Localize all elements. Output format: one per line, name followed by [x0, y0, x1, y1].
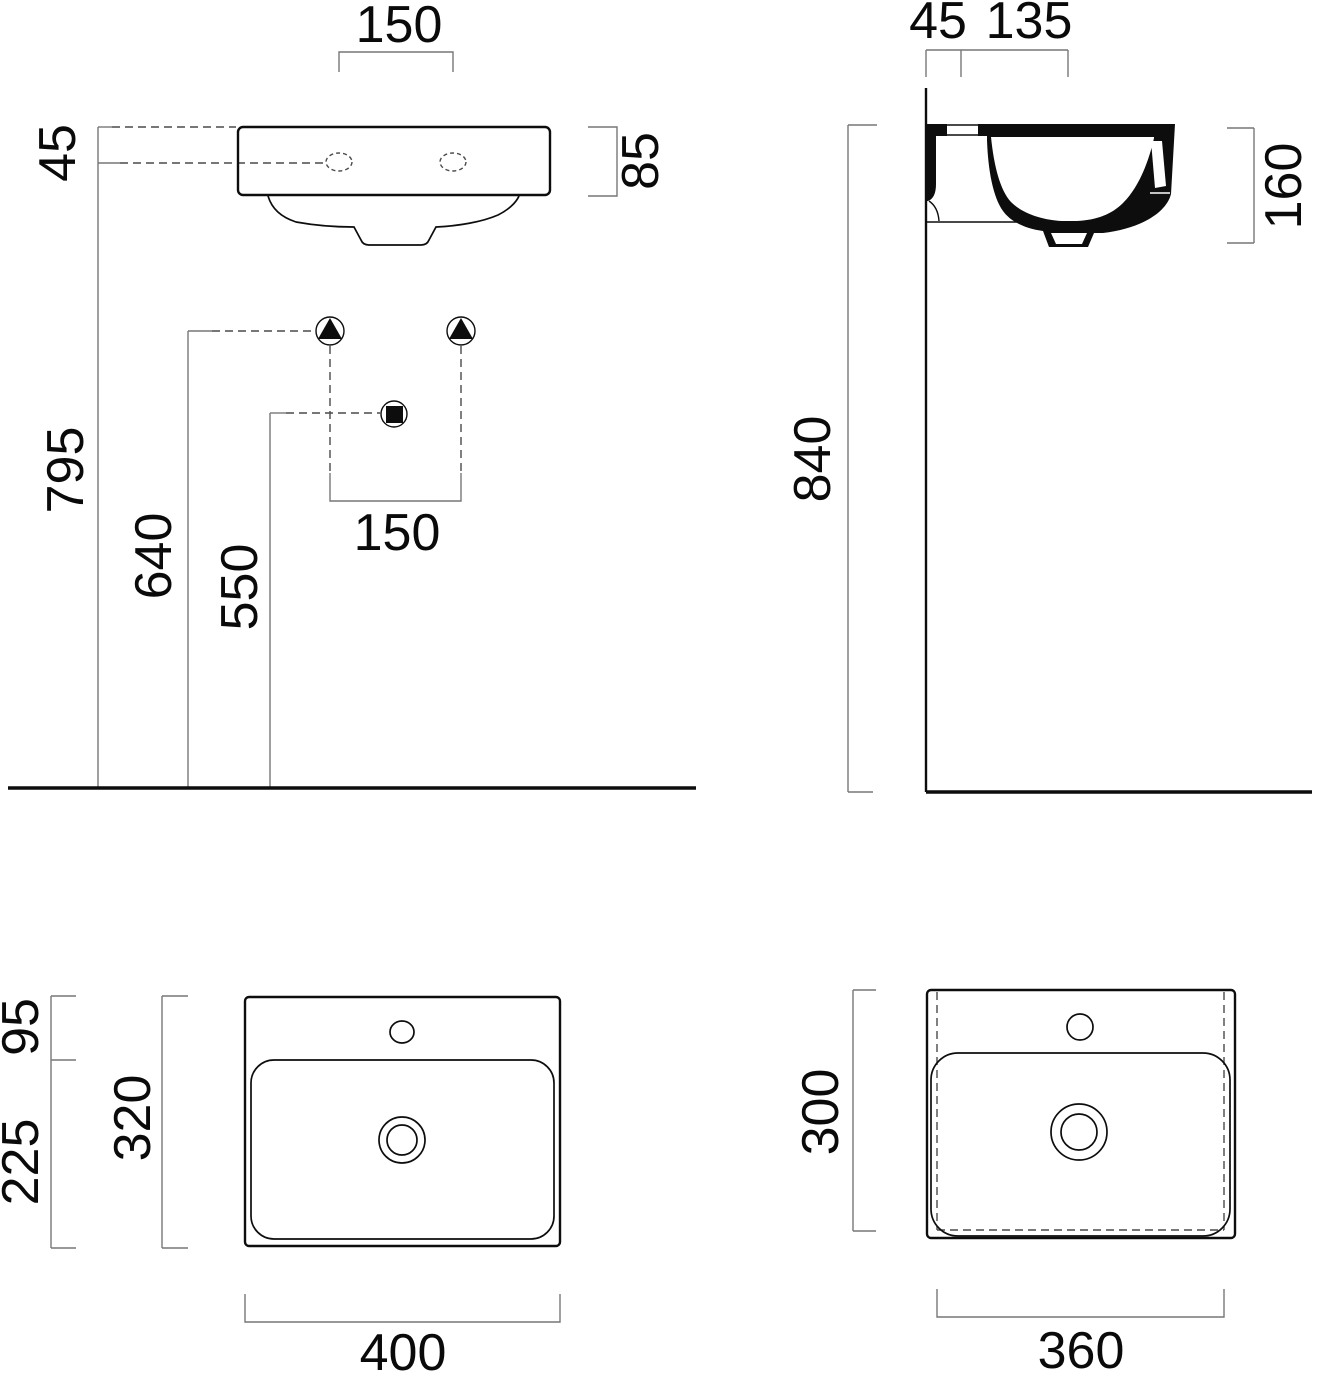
water-supply-symbol-left: [316, 317, 344, 345]
underside-hidden-ledge: [937, 992, 1224, 1230]
dim-label-floor-to-supply: 640: [125, 513, 183, 600]
plan-outer-outline: [245, 997, 560, 1246]
dim-label-floor-to-rim: 840: [784, 416, 842, 503]
dim-label-floor-to-tap: 795: [37, 427, 95, 514]
washbasin-dimension-drawing: 150 45 795 85 640: [0, 0, 1320, 1375]
section-back-flange: [926, 124, 947, 201]
dim-bracket-total-depth: [162, 996, 188, 1248]
section-drain-opening: [1051, 233, 1087, 244]
section-body: [978, 124, 1175, 247]
dim-bracket-basin-depth: [1227, 128, 1254, 243]
dim-bracket-tap-spacing-top: [339, 52, 453, 72]
dim-label-underside-depth: 300: [792, 1069, 850, 1156]
dim-bracket-deck-bowl: [51, 996, 76, 1248]
dim-label-underside-width: 360: [1038, 1322, 1125, 1375]
underside-drain-inner: [1061, 1114, 1097, 1150]
waste-outlet-square-icon: [386, 406, 403, 423]
dim-bracket-total-width: [245, 1294, 560, 1322]
water-supply-triangle-icon: [318, 318, 342, 339]
dim-label-floor-to-drain: 550: [211, 544, 269, 631]
dim-label-supply-spacing: 150: [354, 504, 441, 562]
dim-label-bowl-depth: 225: [0, 1119, 50, 1206]
section-back-lower-curve: [929, 201, 939, 221]
dim-label-rim-height: 85: [612, 132, 670, 190]
dim-label-deck-depth: 95: [0, 998, 50, 1056]
plan-drain-inner: [387, 1125, 417, 1155]
technical-drawing-page: 150 45 795 85 640: [0, 0, 1320, 1375]
sink-body-outline: [238, 127, 550, 195]
plan-view-top: 95 225 320 400: [0, 996, 560, 1375]
water-supply-triangle-icon: [449, 318, 473, 339]
waste-outlet-symbol: [381, 401, 407, 427]
dim-bracket-underside-depth: [853, 990, 876, 1231]
section-tap-hole-gap: [947, 125, 978, 135]
underside-drain-outer: [1051, 1104, 1107, 1160]
plan-bowl-outline: [251, 1060, 554, 1239]
tap-hole-right-hidden: [440, 153, 466, 171]
front-elevation-view: 150 45 795 85 640: [8, 0, 696, 788]
tap-hole-left-hidden: [326, 153, 352, 171]
dim-label-tap-to-front: 135: [986, 0, 1073, 50]
dim-label-total-width: 400: [360, 1324, 447, 1375]
dim-line-floor-to-rim: [848, 125, 877, 792]
water-supply-symbol-right: [447, 317, 475, 345]
dim-bracket-supply-spacing: [330, 473, 461, 501]
dim-label-total-depth: 320: [104, 1075, 162, 1162]
plan-tap-hole: [390, 1021, 414, 1043]
dim-label-wall-to-tap: 45: [909, 0, 967, 50]
basin-cross-section: [926, 124, 1175, 247]
dim-label-basin-depth: 160: [1255, 143, 1313, 230]
underside-tap-hole: [1067, 1014, 1093, 1040]
dim-label-rim-to-tap: 45: [29, 124, 87, 182]
plan-drain-outer: [379, 1117, 425, 1163]
side-section-view: 45 135 840 160: [784, 0, 1313, 792]
basin-underside-outline: [268, 196, 519, 245]
dim-bracket-wall-tap-front: [926, 50, 1068, 77]
dim-label-tap-spacing-top: 150: [356, 0, 443, 54]
dim-bracket-underside-width: [937, 1289, 1224, 1317]
underside-bowl-outline: [931, 1053, 1230, 1236]
plan-view-bottom: 300 360: [792, 990, 1235, 1375]
